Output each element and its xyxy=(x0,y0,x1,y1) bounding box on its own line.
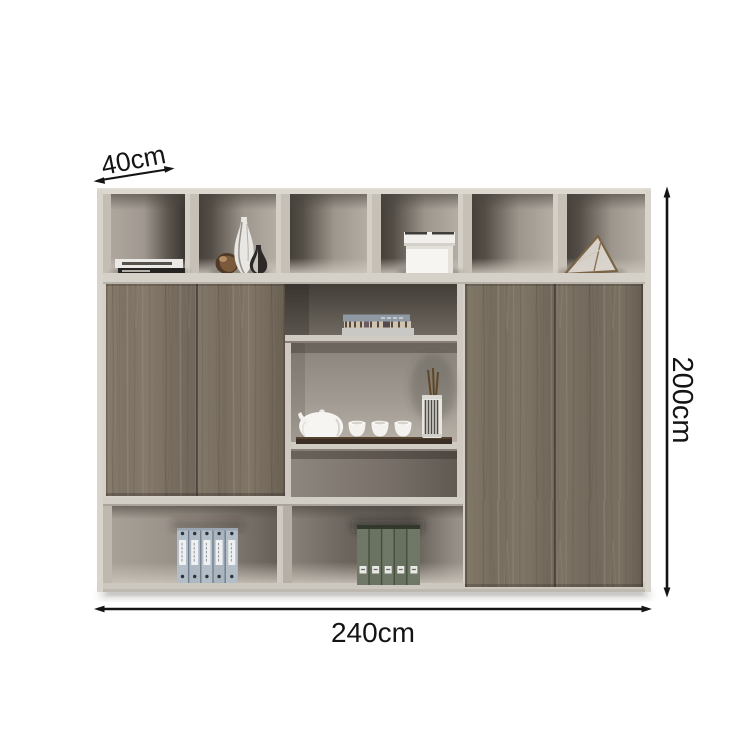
svg-text:200cm: 200cm xyxy=(666,356,698,443)
svg-text:240cm: 240cm xyxy=(331,617,415,648)
